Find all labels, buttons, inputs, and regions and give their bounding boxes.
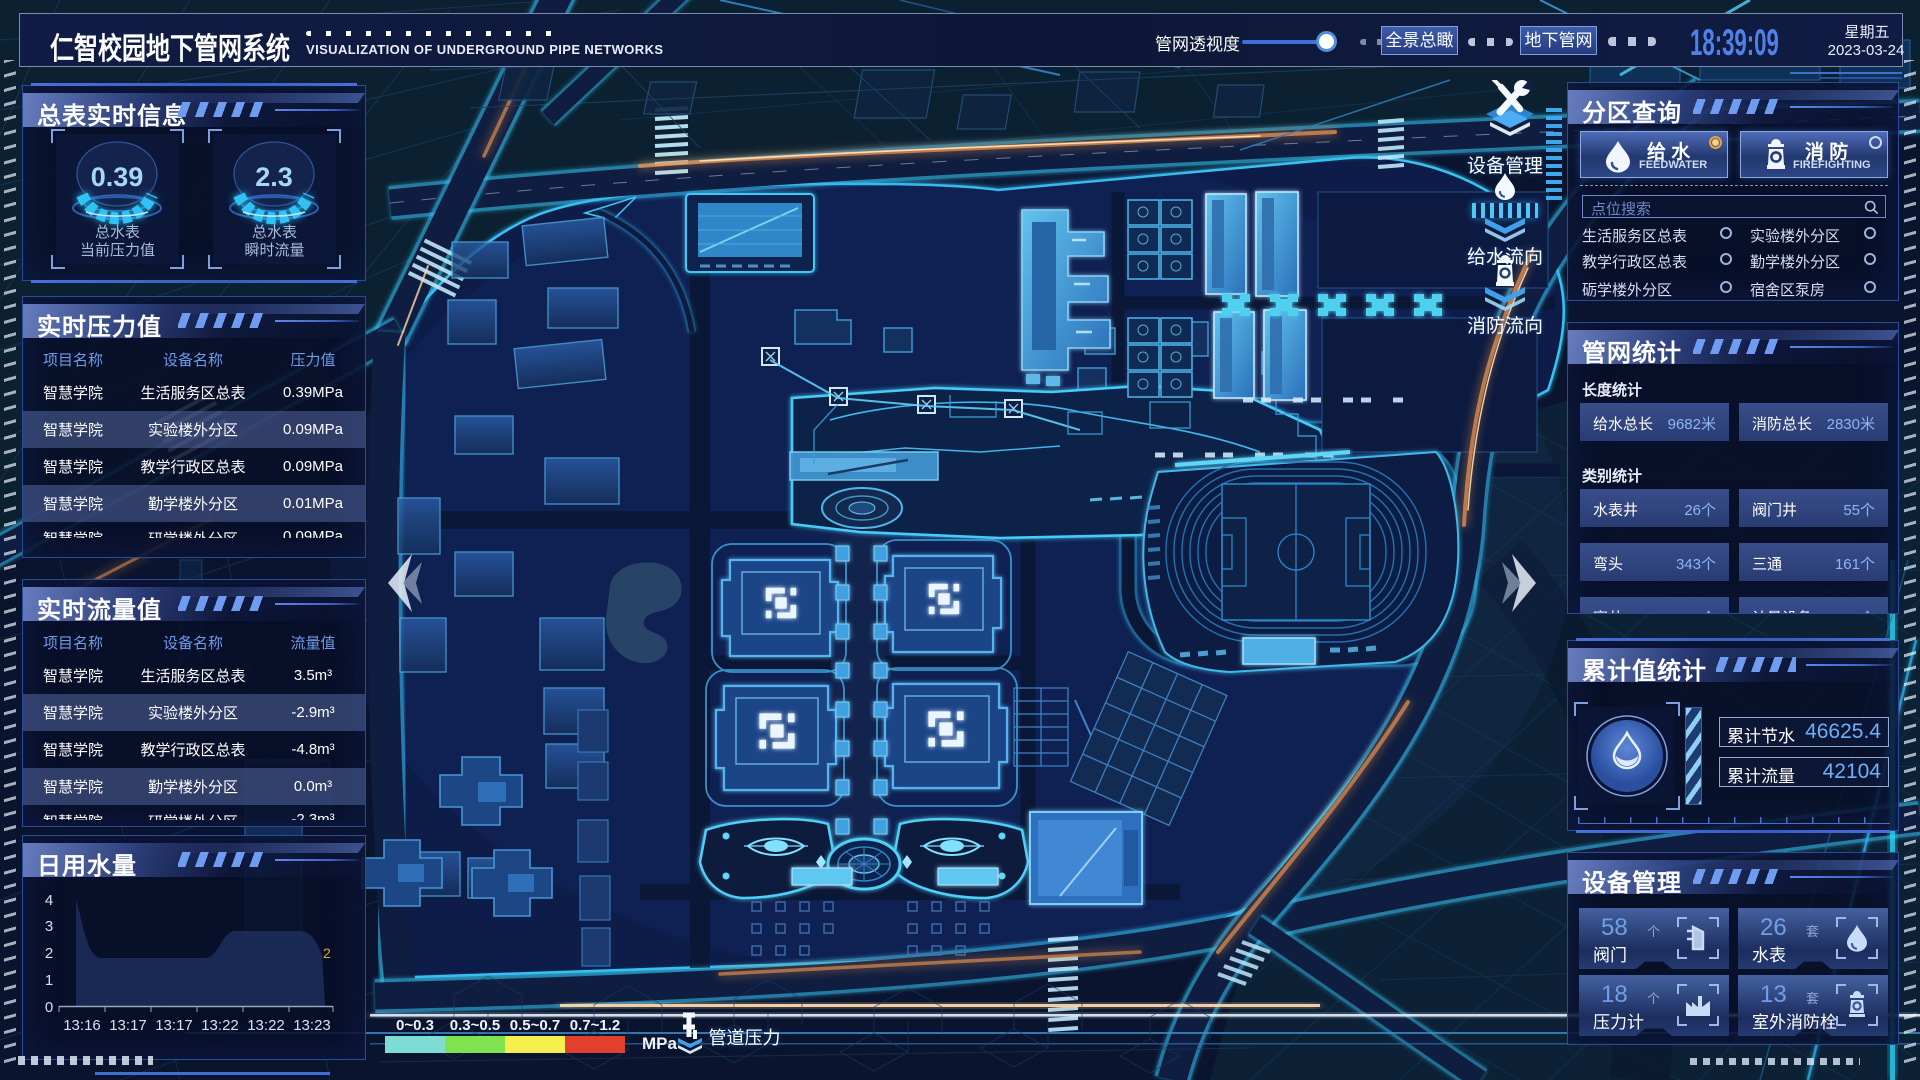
svg-text:1: 1 [45,972,53,989]
svg-text:2: 2 [323,945,331,961]
svg-text:13:22: 13:22 [247,1017,285,1034]
svg-text:4: 4 [45,892,53,909]
svg-text:2.3: 2.3 [255,162,293,192]
svg-text:13:16: 13:16 [63,1017,101,1034]
svg-text:0: 0 [45,999,53,1016]
svg-text:13:17: 13:17 [109,1017,147,1034]
svg-text:13:22: 13:22 [201,1017,239,1034]
svg-text:13:23: 13:23 [293,1017,331,1034]
svg-text:2: 2 [45,945,53,962]
svg-text:3: 3 [45,918,53,935]
svg-text:0.39: 0.39 [91,162,144,192]
svg-text:13:17: 13:17 [155,1017,193,1034]
